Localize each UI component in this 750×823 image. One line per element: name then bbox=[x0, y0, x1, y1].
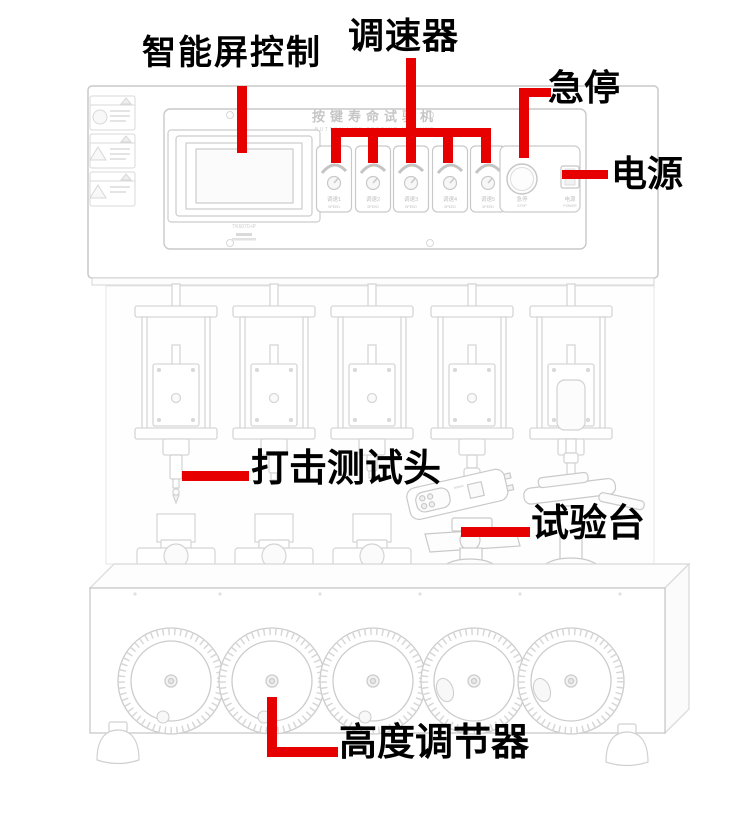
warning-label-2 bbox=[90, 134, 135, 168]
annotation-smart-screen-control: 智能屏控制 bbox=[142, 36, 322, 70]
brand-mark bbox=[236, 233, 252, 236]
hammer-station-2 bbox=[233, 284, 315, 455]
emergency-stop-button bbox=[507, 164, 537, 194]
height-adjuster-dial-5 bbox=[518, 628, 624, 734]
machine-title: 按键寿命试验机 bbox=[312, 109, 438, 124]
knob-4-label: 调速4 bbox=[443, 195, 457, 203]
height-adjuster-dial-3 bbox=[320, 628, 426, 734]
annotation-height-adjuster: 高度调节器 bbox=[339, 724, 529, 762]
power-panel-label: 电源 bbox=[564, 195, 576, 203]
callout-drop-knob-5 bbox=[481, 133, 491, 163]
callout-drop-knob-1 bbox=[331, 133, 341, 163]
callout-drop-knob-3 bbox=[406, 133, 416, 163]
hammer-station-4 bbox=[431, 284, 513, 455]
callout-drop-knob-4 bbox=[443, 133, 453, 163]
callout-line-power bbox=[562, 170, 608, 179]
knob-3-sublabel: SPEED bbox=[405, 205, 417, 209]
callout-drop-knob-2 bbox=[368, 133, 378, 163]
estop-panel-label: 急停 bbox=[516, 195, 528, 203]
knob-4-sublabel: SPEED bbox=[444, 205, 456, 209]
screen-model-text: TK6070-iP bbox=[232, 224, 256, 230]
warning-label-3 bbox=[90, 172, 135, 206]
annotated-machine-figure: 按键寿命试验机 BUTTON LIFE TESTING MACHINE TK60… bbox=[0, 0, 750, 823]
height-adjuster-dial-1 bbox=[118, 628, 224, 734]
callout-line-test-bench bbox=[461, 527, 530, 537]
dial-1-crank-handle bbox=[157, 711, 169, 723]
annotation-test-bench: 试验台 bbox=[531, 505, 645, 543]
callout-line-estop-vertical bbox=[519, 88, 529, 158]
callout-line-smart-screen bbox=[237, 86, 247, 153]
warning-label-1 bbox=[90, 96, 135, 130]
knob-5-sublabel: SPEED bbox=[482, 205, 494, 209]
annotation-impact-test-head: 打击测试头 bbox=[251, 450, 441, 488]
annotation-speed-governor: 调速器 bbox=[348, 18, 459, 54]
power-panel-sublabel: POWER bbox=[563, 204, 577, 208]
hammer-station-1 bbox=[135, 284, 217, 455]
height-adjuster-dial-4 bbox=[421, 628, 527, 734]
hammer-station-3 bbox=[331, 284, 413, 455]
knob-2-sublabel: SPEED bbox=[367, 205, 379, 209]
estop-panel-sublabel: STOP bbox=[517, 204, 527, 208]
callout-line-height-adjuster-horizontal bbox=[267, 747, 338, 757]
knob-1-label: 调速1 bbox=[327, 195, 341, 203]
annotation-emergency-stop: 急停 bbox=[548, 70, 620, 106]
callout-stem-speed-governor bbox=[406, 58, 416, 132]
machine-line-drawing: 按键寿命试验机 BUTTON LIFE TESTING MACHINE TK60… bbox=[0, 0, 750, 823]
knob-2-label: 调速2 bbox=[366, 195, 380, 203]
brand-subtext bbox=[232, 238, 256, 241]
knob-1-sublabel: SPEED bbox=[328, 205, 340, 209]
knob-3-label: 调速3 bbox=[404, 195, 418, 203]
knob-5-label: 调速5 bbox=[481, 195, 495, 203]
annotation-power: 电源 bbox=[611, 156, 683, 192]
callout-line-impact-head bbox=[182, 471, 249, 481]
